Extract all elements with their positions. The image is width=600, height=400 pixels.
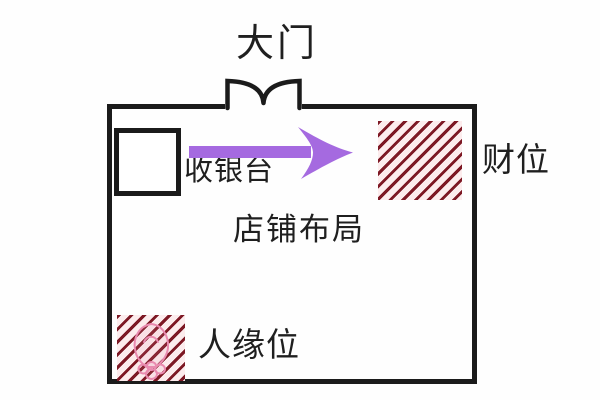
wealth-corner-hatch [378, 121, 462, 200]
door-label: 大门 [236, 24, 318, 66]
popularity-corner-hatch [117, 315, 185, 381]
cashier-counter-square [114, 128, 181, 196]
wealth-corner-label: 财位 [482, 142, 550, 178]
store-layout-diagram: 大门 收银台 店铺布局 财位 人缘位 [0, 0, 600, 400]
